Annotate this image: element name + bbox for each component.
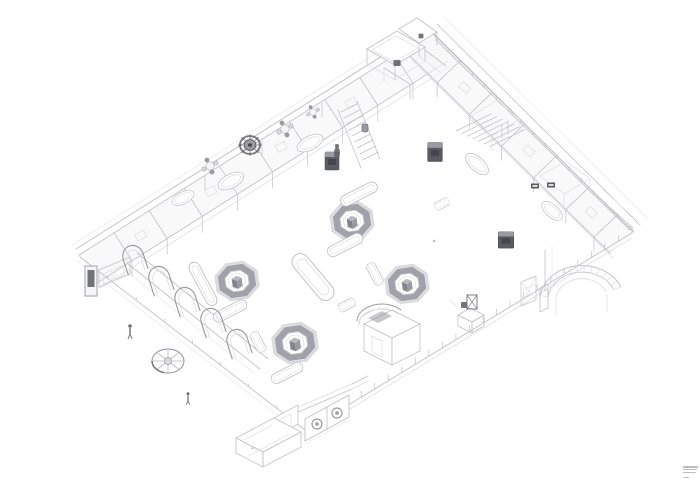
- floor-plan-drawing: [0, 0, 700, 484]
- fine-print-line: [683, 466, 698, 468]
- fine-print-line: [683, 469, 697, 471]
- fine-print-line: [683, 472, 696, 474]
- page: [0, 0, 700, 484]
- fine-print-block: [683, 466, 699, 480]
- scene-root: [72, 17, 647, 467]
- fine-print-line: [683, 477, 689, 479]
